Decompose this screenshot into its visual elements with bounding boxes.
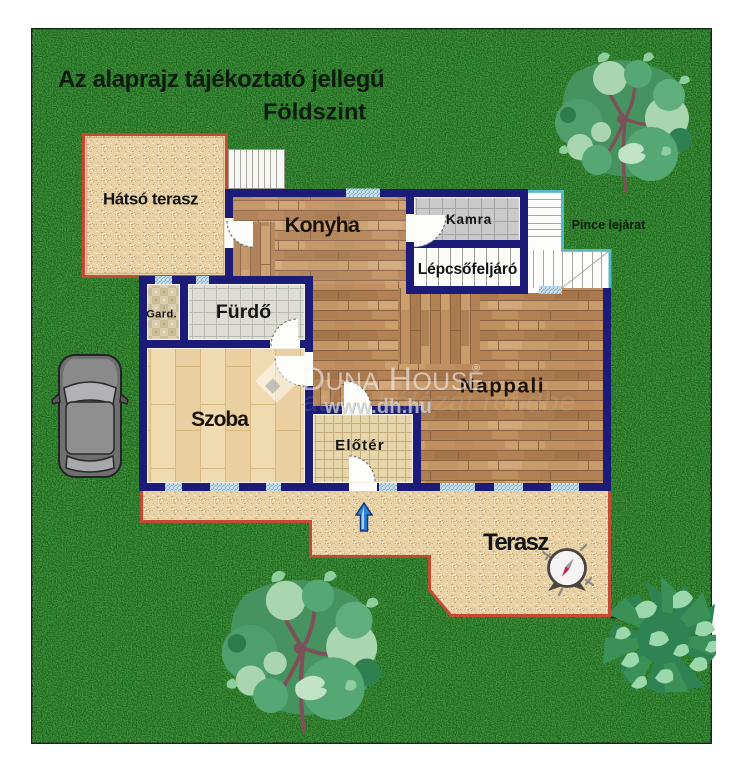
svg-text:Terasz: Terasz xyxy=(483,529,549,556)
svg-text:®: ® xyxy=(472,363,480,375)
svg-text:Földszint: Földszint xyxy=(263,99,366,125)
svg-text:Konyha: Konyha xyxy=(285,213,361,237)
svg-text:Szoba: Szoba xyxy=(191,408,249,431)
svg-text:www.dh.hu: www.dh.hu xyxy=(324,396,433,418)
svg-text:Lépcsőfeljáró: Lépcsőfeljáró xyxy=(418,261,517,278)
svg-text:Fürdő: Fürdő xyxy=(216,301,271,323)
svg-text:Előtér: Előtér xyxy=(335,437,385,454)
svg-text:Az alaprajz tájékoztató jelleg: Az alaprajz tájékoztató jellegű xyxy=(58,66,384,93)
svg-text:Kamra: Kamra xyxy=(446,212,492,227)
svg-text:Pince lejárat: Pince lejárat xyxy=(572,218,646,232)
svg-text:Gard.: Gard. xyxy=(146,309,177,321)
svg-text:Hátsó terasz: Hátsó terasz xyxy=(103,190,198,209)
